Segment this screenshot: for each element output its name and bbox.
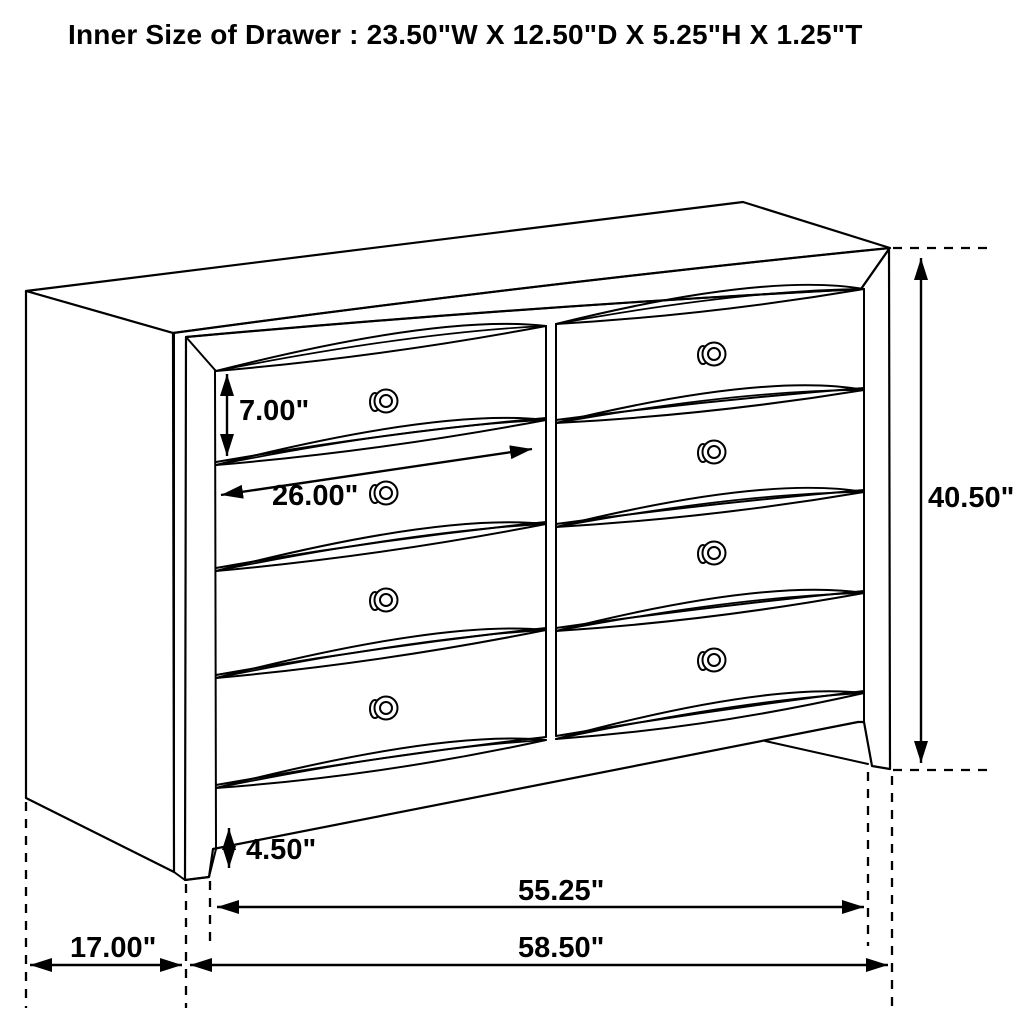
drawer-knob-icon: [370, 482, 398, 505]
dresser-side-panel: [26, 291, 174, 872]
dim-label-width-between-feet: 55.25": [518, 875, 604, 907]
dim-label-drawer-width: 26.00": [272, 480, 358, 512]
dim-label-base-height: 4.50": [246, 834, 316, 866]
drawer-knob-icon: [698, 343, 726, 366]
drawer-knob-icon: [698, 542, 726, 565]
dresser-drawing: [26, 202, 890, 880]
dresser-dimension-diagram: 7.00" 26.00" 40.50" 4.50" 55.25" 58.50" …: [0, 0, 1024, 1024]
drawer-knob-icon: [698, 441, 726, 464]
dim-label-overall-width: 58.50": [518, 932, 604, 964]
drawer-knob-icon: [698, 649, 726, 672]
drawer-knob-icon: [370, 589, 398, 612]
dim-label-drawer-height: 7.00": [239, 395, 309, 427]
dimension-diagram-page: Inner Size of Drawer : 23.50"W X 12.50"D…: [0, 0, 1024, 1024]
dresser-front-face: [185, 249, 890, 880]
dim-label-overall-height: 40.50": [928, 482, 1014, 514]
drawer-knob-icon: [370, 390, 398, 413]
left-stile-inner-edge: [215, 370, 216, 849]
drawer-knob-icon: [370, 697, 398, 720]
dim-label-side-depth: 17.00": [70, 932, 156, 964]
right-foot-bracket: [765, 741, 868, 764]
